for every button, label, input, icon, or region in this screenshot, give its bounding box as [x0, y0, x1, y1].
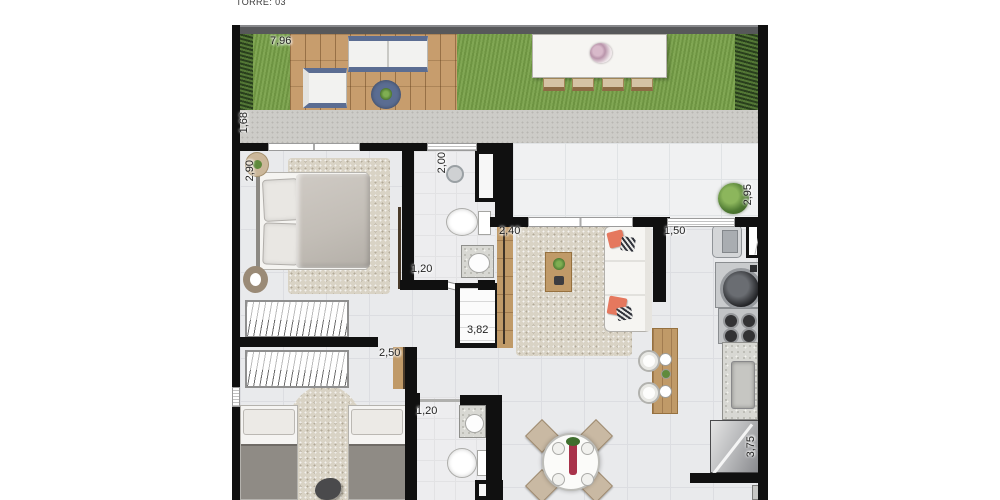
washer-door	[720, 268, 762, 310]
place-setting	[552, 473, 565, 486]
flower-centerpiece	[590, 43, 612, 63]
bathroom2-north-wall	[460, 395, 486, 405]
dim-bedroom2: 2,50	[379, 348, 400, 359]
dining-table	[542, 433, 600, 491]
entry-door	[503, 226, 505, 344]
outdoor-sofa	[348, 36, 428, 72]
kitchen-south-wall	[690, 473, 768, 483]
bathroom2-door	[420, 399, 462, 402]
kitchen-sink	[731, 361, 755, 409]
outdoor-dining-table	[532, 34, 667, 78]
exterior-wall	[360, 143, 427, 151]
dim-kitchen-window: 1,50	[664, 226, 685, 237]
living-north-wall	[735, 217, 758, 227]
bedroom1-door	[398, 207, 401, 289]
outdoor-stool	[543, 78, 565, 91]
basin	[468, 253, 490, 273]
single-bed	[348, 405, 406, 500]
washing-machine	[715, 262, 760, 308]
bathroom1-window	[427, 143, 477, 151]
bar-plant	[661, 369, 671, 379]
double-bed	[256, 172, 368, 270]
pillow	[351, 409, 403, 435]
dim-bathroom1-length: 2,00	[437, 152, 448, 173]
outdoor-stool	[572, 78, 594, 91]
hedge-left	[240, 34, 253, 110]
pattern-pillow	[616, 306, 633, 321]
pillow	[243, 409, 295, 435]
outdoor-armchair	[303, 68, 347, 108]
wardrobe	[245, 300, 349, 338]
pouf	[243, 266, 268, 293]
burner	[741, 313, 757, 329]
bedrooms-divider-wall	[232, 337, 378, 347]
bathroom1-south-wall	[400, 280, 448, 290]
top-wall	[232, 25, 768, 34]
duvet	[296, 174, 370, 268]
outdoor-round-rug	[371, 80, 401, 109]
dim-hall: 3,82	[467, 325, 488, 336]
place-setting	[552, 442, 565, 455]
floor-plan: 7,96 1,68 2,90 2,00 1,20 2,40 1,50 2,95 …	[232, 0, 768, 500]
exterior-wall	[232, 143, 268, 151]
bedroom2-east-wall	[405, 347, 417, 500]
pillow	[262, 178, 300, 222]
left-wall	[232, 25, 240, 500]
bathroom1-east-wall	[495, 143, 513, 222]
coffee-table	[545, 252, 572, 292]
dim-entry: 2,40	[499, 226, 520, 237]
plate	[659, 353, 672, 366]
place-setting	[581, 442, 594, 455]
shower-head	[446, 165, 464, 183]
bathroom-sink	[461, 245, 494, 278]
basin	[465, 414, 484, 433]
toilet	[447, 448, 477, 478]
bar-stool	[638, 350, 660, 372]
kitchen-counter	[722, 342, 758, 420]
plate	[659, 385, 672, 398]
place-setting	[581, 473, 594, 486]
right-wall	[758, 25, 768, 500]
outdoor-stool	[602, 78, 624, 91]
dim-terrace: 2,95	[743, 184, 754, 205]
bedroom2-window	[232, 387, 240, 407]
hedge-right	[735, 34, 758, 110]
burner	[723, 313, 739, 329]
living-sofa	[604, 226, 652, 332]
bar-stool	[638, 382, 660, 404]
shower-niche	[475, 150, 497, 202]
hall-closet	[455, 283, 500, 348]
blanket	[241, 444, 297, 499]
laundry-tank	[712, 225, 742, 258]
dim-bathroom2: 1,20	[416, 406, 437, 417]
dim-kitchen: 3,75	[746, 436, 757, 457]
blanket	[349, 444, 405, 499]
floorplan-screenshot: TORRE: 03	[0, 0, 1000, 500]
dim-walkway: 1,68	[239, 112, 250, 133]
bathroom1-south-wall	[478, 280, 495, 290]
single-bed	[240, 405, 298, 500]
dim-bathroom1-width: 1,20	[411, 264, 432, 275]
outdoor-stool	[631, 78, 653, 91]
pillow	[262, 222, 299, 265]
dim-garden: 7,96	[270, 36, 291, 47]
toilet	[446, 208, 478, 236]
washer-control	[750, 265, 757, 272]
bathroom-sink	[459, 405, 486, 438]
dim-bedroom1: 2,90	[245, 160, 256, 181]
living-sliding-door	[528, 217, 633, 227]
pattern-pillow	[620, 236, 636, 252]
bedroom1-sliding-door	[268, 143, 360, 151]
cooktop	[718, 308, 760, 344]
table-runner	[569, 441, 577, 475]
wardrobe	[245, 350, 349, 388]
entry-wood-floor	[497, 222, 513, 348]
paved-walkway	[240, 110, 758, 143]
bathroom2-east-wall	[486, 395, 502, 500]
